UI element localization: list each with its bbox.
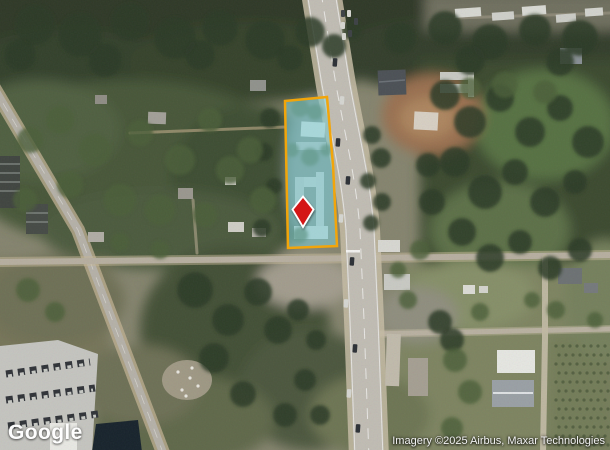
map-viewport[interactable]: Google Imagery ©2025 Airbus, Maxar Techn… (0, 0, 610, 450)
imagery-attribution: Imagery ©2025 Airbus, Maxar Technologies (392, 435, 605, 447)
satellite-imagery (0, 0, 610, 450)
parcel-highlight[interactable] (285, 97, 337, 248)
google-watermark[interactable]: Google (8, 421, 83, 445)
